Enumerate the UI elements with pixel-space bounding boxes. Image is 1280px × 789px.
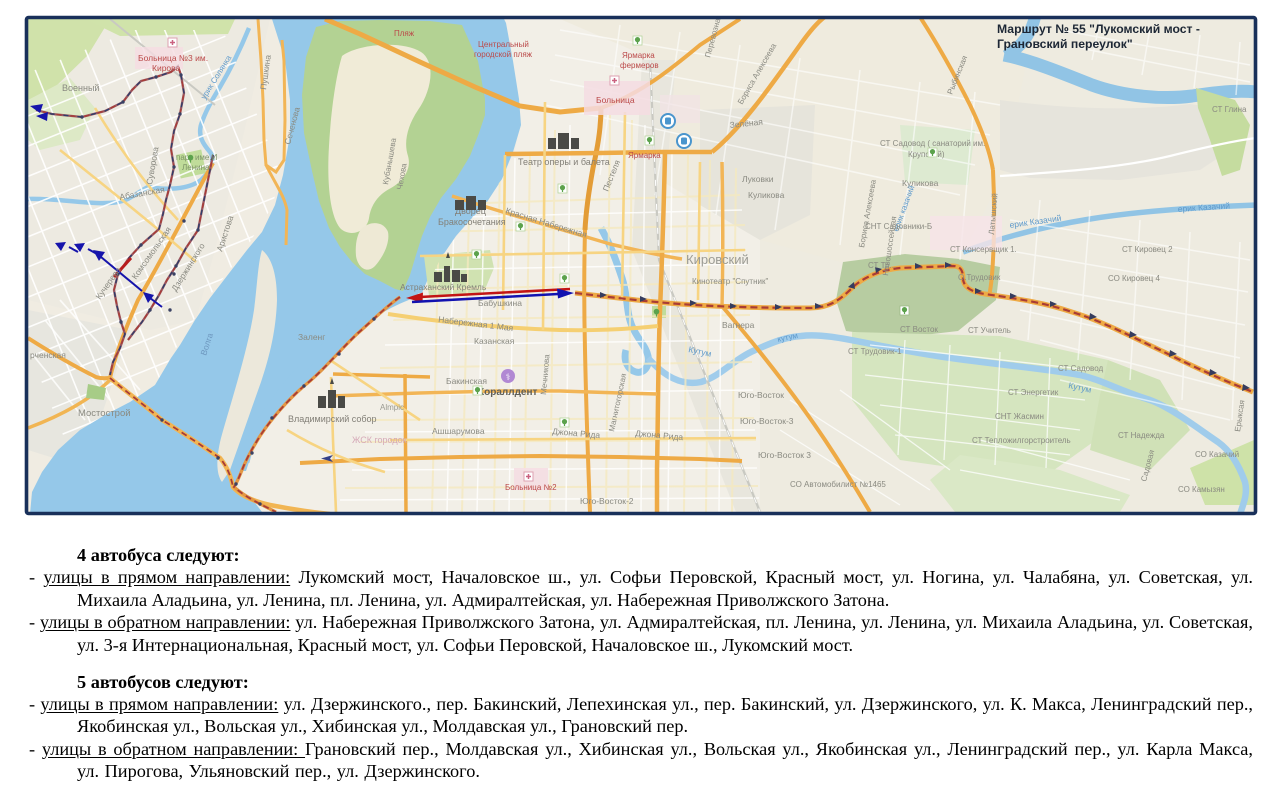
svg-text:Казанская: Казанская — [474, 336, 515, 346]
svg-text:СО Автомобилист №1465: СО Автомобилист №1465 — [790, 480, 886, 489]
svg-text:Юго-Восток-2: Юго-Восток-2 — [580, 496, 634, 506]
svg-text:Заленг: Заленг — [298, 332, 325, 342]
svg-text:Almpic: Almpic — [380, 403, 404, 412]
svg-text:Кораллдент: Кораллдент — [478, 387, 538, 398]
svg-text:Астраханский Кремль: Астраханский Кремль — [400, 282, 487, 292]
svg-text:Кирова: Кирова — [152, 63, 181, 73]
svg-text:ЖСК городок: ЖСК городок — [352, 435, 407, 445]
svg-text:СТ Трудовик-1: СТ Трудовик-1 — [848, 347, 902, 356]
svg-text:Бакинская: Бакинская — [446, 376, 487, 386]
svg-text:Юго-Восток: Юго-Восток — [738, 390, 784, 400]
svg-text:Бабушкина: Бабушкина — [478, 298, 522, 308]
svg-text:Ашшарумова: Ашшарумова — [432, 426, 485, 436]
svg-text:Ленина: Ленина — [182, 163, 210, 172]
svg-text:Юго-Восток-3: Юго-Восток-3 — [740, 416, 794, 426]
svg-text:Больница: Больница — [596, 95, 635, 105]
svg-text:Луковки: Луковки — [742, 174, 774, 184]
svg-text:Мостострой: Мостострой — [78, 408, 131, 419]
svg-text:Кировский: Кировский — [686, 252, 749, 267]
svg-text:Куликова: Куликова — [748, 190, 785, 200]
svg-text:СТ Консервщик 1.: СТ Консервщик 1. — [950, 245, 1017, 254]
svg-text:Владимирский собор: Владимирский собор — [288, 414, 377, 424]
svg-text:фермеров: фермеров — [620, 61, 659, 70]
svg-text:СТ Восток: СТ Восток — [900, 325, 938, 334]
svg-text:Ярмарка: Ярмарка — [622, 51, 655, 60]
svg-text:СТ Учитель: СТ Учитель — [968, 326, 1011, 335]
svg-text:СНТ Садовники-Б: СНТ Садовники-Б — [865, 222, 932, 231]
svg-text:Ярмарка: Ярмарка — [628, 151, 661, 160]
svg-text:Пляж: Пляж — [394, 29, 415, 38]
svg-text:О.Трудовик: О.Трудовик — [958, 273, 1001, 282]
svg-text:Вагнера: Вагнера — [722, 320, 755, 330]
svg-text:Военный: Военный — [62, 83, 99, 93]
svg-text:СТ Садовод ( санаторий им.: СТ Садовод ( санаторий им. — [880, 139, 985, 148]
svg-text:⚕: ⚕ — [506, 372, 511, 382]
svg-text:СТ Энергетик: СТ Энергетик — [1008, 388, 1059, 397]
svg-text:СО Камызян: СО Камызян — [1178, 485, 1225, 494]
svg-text:СНТ Жасмин: СНТ Жасмин — [995, 412, 1044, 421]
svg-text:СТ Тепложилгорстроитель: СТ Тепложилгорстроитель — [972, 436, 1071, 445]
svg-text:Юго-Восток 3: Юго-Восток 3 — [758, 450, 811, 460]
svg-text:Крупской): Крупской) — [908, 150, 945, 159]
svg-text:рченская: рченская — [30, 350, 66, 360]
svg-text:СТ Кировец 2: СТ Кировец 2 — [1122, 245, 1173, 254]
svg-text:Больница №2: Больница №2 — [505, 483, 557, 492]
svg-text:городской пляж: городской пляж — [474, 50, 533, 59]
svg-text:СТ Садовод: СТ Садовод — [1058, 364, 1103, 373]
svg-text:СТ Надежда: СТ Надежда — [1118, 431, 1165, 440]
svg-text:Театр оперы и балета: Театр оперы и балета — [518, 157, 610, 167]
svg-text:Больница №3 им.: Больница №3 им. — [138, 53, 208, 63]
svg-text:парк име.И: парк име.И — [176, 153, 218, 162]
svg-text:СТ Глина: СТ Глина — [1212, 105, 1247, 114]
svg-text:Кинотеатр "Спутник": Кинотеатр "Спутник" — [692, 277, 768, 286]
svg-text:Бракосочетания: Бракосочетания — [438, 217, 506, 227]
svg-text:СО Казачий: СО Казачий — [1195, 450, 1239, 459]
svg-text:Центральный: Центральный — [478, 40, 529, 49]
svg-text:СО Кировец 4: СО Кировец 4 — [1108, 274, 1160, 283]
